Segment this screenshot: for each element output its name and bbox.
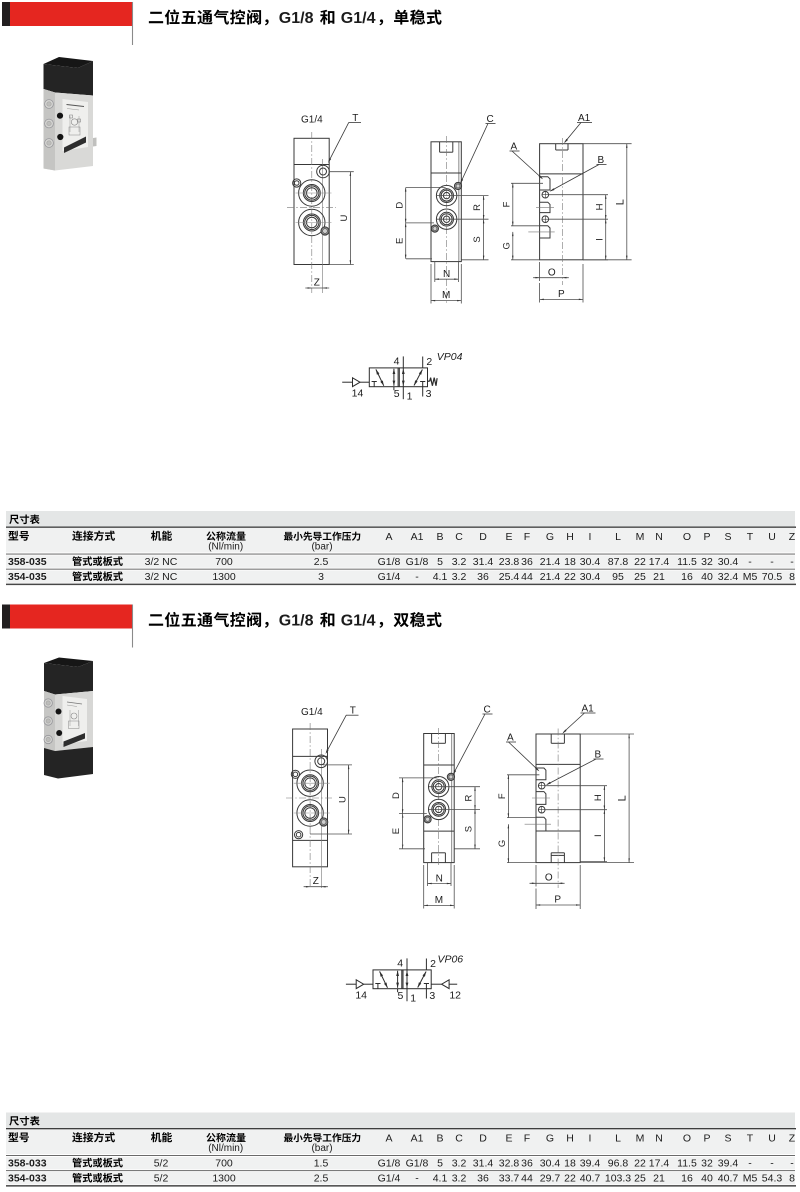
svg-text:5: 5 <box>397 990 403 1002</box>
svg-text:M5: M5 <box>743 571 758 583</box>
svg-text:3.2: 3.2 <box>452 1173 467 1185</box>
svg-text:1: 1 <box>410 993 416 1005</box>
svg-text:3: 3 <box>318 571 324 583</box>
svg-text:Z: Z <box>314 278 320 289</box>
svg-text:4.1: 4.1 <box>433 1173 448 1185</box>
svg-text:96.8: 96.8 <box>608 1158 629 1170</box>
svg-text:-: - <box>748 556 752 568</box>
svg-text:3/2 NC: 3/2 NC <box>145 556 178 568</box>
svg-text:A1: A1 <box>411 1132 424 1144</box>
svg-text:700: 700 <box>215 1158 233 1170</box>
svg-text:N: N <box>436 873 443 884</box>
svg-text:12: 12 <box>449 990 461 1002</box>
svg-text:(Nl/min): (Nl/min) <box>208 1143 243 1154</box>
svg-text:14: 14 <box>352 388 364 400</box>
svg-text:(Nl/min): (Nl/min) <box>208 542 243 553</box>
svg-text:M: M <box>435 895 443 906</box>
svg-text:G1/8: G1/8 <box>378 1158 401 1170</box>
svg-text:30.4: 30.4 <box>580 571 601 583</box>
svg-text:39.4: 39.4 <box>580 1158 601 1170</box>
svg-text:8: 8 <box>789 1173 795 1185</box>
svg-text:40: 40 <box>701 571 713 583</box>
svg-text:-: - <box>770 1158 774 1170</box>
svg-text:Z: Z <box>313 876 319 887</box>
svg-text:2.5: 2.5 <box>314 1173 329 1185</box>
svg-text:D: D <box>391 792 402 799</box>
svg-text:(bar): (bar) <box>311 1143 332 1154</box>
svg-text:354-033: 354-033 <box>8 1173 47 1185</box>
svg-text:O: O <box>545 873 553 884</box>
svg-text:25: 25 <box>634 1173 646 1185</box>
svg-text:N: N <box>655 531 663 543</box>
svg-text:1.5: 1.5 <box>314 1158 329 1170</box>
svg-text:T: T <box>747 531 754 543</box>
svg-text:H: H <box>566 531 574 543</box>
svg-text:87.8: 87.8 <box>608 556 629 568</box>
svg-text:44: 44 <box>521 1173 533 1185</box>
svg-text:G1/8: G1/8 <box>406 556 429 568</box>
svg-text:G1/8: G1/8 <box>279 613 314 630</box>
svg-text:-: - <box>415 1173 419 1185</box>
svg-text:I: I <box>594 238 605 241</box>
svg-text:3: 3 <box>426 388 432 400</box>
svg-text:P: P <box>703 531 710 543</box>
svg-text:44: 44 <box>521 571 533 583</box>
svg-text:22: 22 <box>634 556 646 568</box>
svg-text:U: U <box>339 215 350 222</box>
svg-text:I: I <box>589 1132 592 1144</box>
svg-text:21.4: 21.4 <box>540 556 561 568</box>
svg-text:U: U <box>768 531 776 543</box>
svg-text:G1/4: G1/4 <box>301 707 323 718</box>
svg-text:22: 22 <box>634 1158 646 1170</box>
svg-text:36: 36 <box>521 556 533 568</box>
svg-text:11.5: 11.5 <box>677 556 697 568</box>
svg-text:M: M <box>442 290 450 301</box>
svg-text:F: F <box>524 1132 530 1144</box>
svg-text:G1/4: G1/4 <box>378 1173 401 1185</box>
svg-text:-: - <box>790 1158 794 1170</box>
svg-text:F: F <box>497 793 508 799</box>
svg-text:29.7: 29.7 <box>540 1173 561 1185</box>
svg-text:G1/8: G1/8 <box>406 1158 429 1170</box>
svg-text:70.5: 70.5 <box>762 571 783 583</box>
svg-text:F: F <box>524 531 530 543</box>
svg-text:P: P <box>554 894 561 905</box>
svg-text:32: 32 <box>701 1158 713 1170</box>
svg-text:18: 18 <box>564 556 576 568</box>
svg-text:C: C <box>455 531 463 543</box>
svg-text:1300: 1300 <box>212 1173 236 1185</box>
svg-text:31.4: 31.4 <box>473 556 494 568</box>
svg-text:16: 16 <box>681 571 693 583</box>
svg-text:F: F <box>501 201 512 207</box>
svg-text:G: G <box>501 242 512 249</box>
svg-text:21: 21 <box>653 571 665 583</box>
svg-text:2: 2 <box>426 356 432 368</box>
svg-text:C: C <box>455 1132 463 1144</box>
svg-text:M: M <box>636 1132 645 1144</box>
svg-text:3/2 NC: 3/2 NC <box>145 571 178 583</box>
svg-text:21.4: 21.4 <box>540 571 561 583</box>
svg-text:14: 14 <box>355 990 367 1002</box>
svg-text:32.4: 32.4 <box>718 571 739 583</box>
svg-text:358-035: 358-035 <box>8 556 47 568</box>
svg-text:700: 700 <box>215 556 233 568</box>
svg-text:3.2: 3.2 <box>452 1158 467 1170</box>
svg-text:30.4: 30.4 <box>540 1158 561 1170</box>
svg-text:36: 36 <box>521 1158 533 1170</box>
svg-text:30.4: 30.4 <box>718 556 739 568</box>
svg-text:5: 5 <box>437 556 443 568</box>
svg-text:32.8: 32.8 <box>499 1158 520 1170</box>
svg-text:VP04: VP04 <box>437 351 463 363</box>
svg-text:-: - <box>415 571 419 583</box>
svg-text:22: 22 <box>564 571 576 583</box>
svg-text:D: D <box>479 531 487 543</box>
svg-text:H: H <box>594 203 605 210</box>
svg-text:E: E <box>505 1132 512 1144</box>
svg-text:G1/4: G1/4 <box>301 115 323 126</box>
svg-text:25.4: 25.4 <box>499 571 520 583</box>
svg-text:R: R <box>472 204 483 211</box>
svg-text:22: 22 <box>564 1173 576 1185</box>
svg-text:B: B <box>436 1132 443 1144</box>
svg-text:G1/4: G1/4 <box>341 613 376 630</box>
svg-text:D: D <box>394 202 405 209</box>
svg-text:N: N <box>443 269 450 280</box>
svg-text:4: 4 <box>397 958 403 970</box>
svg-text:54.3: 54.3 <box>762 1173 783 1185</box>
svg-text:(bar): (bar) <box>311 542 332 553</box>
svg-text:O: O <box>683 1132 691 1144</box>
svg-text:-: - <box>770 556 774 568</box>
svg-text:18: 18 <box>564 1158 576 1170</box>
svg-text:5/2: 5/2 <box>154 1173 169 1185</box>
svg-text:33.7: 33.7 <box>499 1173 520 1185</box>
svg-text:S: S <box>472 236 483 242</box>
svg-text:16: 16 <box>681 1173 693 1185</box>
svg-text:5: 5 <box>437 1158 443 1170</box>
svg-text:Z: Z <box>789 531 796 543</box>
svg-text:39.4: 39.4 <box>718 1158 739 1170</box>
svg-text:P: P <box>558 289 565 300</box>
svg-text:N: N <box>655 1132 663 1144</box>
svg-text:Z: Z <box>789 1132 796 1144</box>
svg-text:2.5: 2.5 <box>314 556 329 568</box>
svg-text:25: 25 <box>634 571 646 583</box>
svg-text:23.8: 23.8 <box>499 556 520 568</box>
svg-text:G1/4: G1/4 <box>378 571 401 583</box>
svg-text:D: D <box>479 1132 487 1144</box>
svg-text:30.4: 30.4 <box>580 556 601 568</box>
svg-text:G: G <box>546 531 554 543</box>
svg-text:21: 21 <box>653 1173 665 1185</box>
svg-text:3.2: 3.2 <box>452 571 467 583</box>
svg-text:40.7: 40.7 <box>718 1173 739 1185</box>
svg-text:U: U <box>768 1132 776 1144</box>
svg-text:G: G <box>546 1132 554 1144</box>
svg-text:40: 40 <box>701 1173 713 1185</box>
svg-text:358-033: 358-033 <box>8 1158 47 1170</box>
svg-text:5: 5 <box>394 388 400 400</box>
svg-text:1300: 1300 <box>212 571 236 583</box>
svg-text:2: 2 <box>430 958 436 970</box>
svg-text:L: L <box>617 795 629 801</box>
svg-text:3.2: 3.2 <box>452 556 467 568</box>
svg-text:36: 36 <box>477 1173 489 1185</box>
svg-text:S: S <box>464 826 475 832</box>
svg-text:E: E <box>394 238 405 244</box>
svg-text:5/2: 5/2 <box>154 1158 169 1170</box>
svg-text:95: 95 <box>612 571 624 583</box>
svg-text:T: T <box>747 1132 754 1144</box>
svg-text:-: - <box>748 1158 752 1170</box>
svg-text:354-035: 354-035 <box>8 571 47 583</box>
svg-text:31.4: 31.4 <box>473 1158 494 1170</box>
svg-text:17.4: 17.4 <box>649 1158 670 1170</box>
svg-text:E: E <box>505 531 512 543</box>
svg-text:11.5: 11.5 <box>677 1158 697 1170</box>
svg-text:3: 3 <box>429 990 435 1002</box>
svg-text:E: E <box>391 828 402 834</box>
svg-text:P: P <box>703 1132 710 1144</box>
svg-text:17.4: 17.4 <box>649 556 670 568</box>
svg-text:G: G <box>497 840 508 847</box>
svg-text:-: - <box>790 556 794 568</box>
svg-text:VP06: VP06 <box>437 953 463 965</box>
svg-text:G1/8: G1/8 <box>279 10 314 27</box>
svg-text:S: S <box>724 1132 731 1144</box>
svg-text:4: 4 <box>394 356 400 368</box>
svg-text:A: A <box>385 531 392 543</box>
svg-text:1: 1 <box>407 391 413 403</box>
svg-text:S: S <box>724 531 731 543</box>
svg-text:103.3: 103.3 <box>605 1173 631 1185</box>
svg-text:L: L <box>615 1132 621 1144</box>
svg-text:L: L <box>615 531 621 543</box>
svg-text:4.1: 4.1 <box>433 571 448 583</box>
svg-text:B: B <box>436 531 443 543</box>
svg-text:L: L <box>614 199 626 205</box>
svg-text:M: M <box>636 531 645 543</box>
svg-text:G1/8: G1/8 <box>378 556 401 568</box>
svg-text:U: U <box>337 796 348 803</box>
svg-text:O: O <box>548 267 556 278</box>
svg-text:36: 36 <box>477 571 489 583</box>
svg-text:8: 8 <box>789 571 795 583</box>
svg-text:A: A <box>385 1132 392 1144</box>
svg-text:I: I <box>589 531 592 543</box>
svg-text:40.7: 40.7 <box>580 1173 601 1185</box>
svg-text:M5: M5 <box>743 1173 758 1185</box>
svg-text:G1/4: G1/4 <box>341 10 376 27</box>
svg-text:O: O <box>683 531 691 543</box>
svg-text:32: 32 <box>701 556 713 568</box>
svg-text:H: H <box>566 1132 574 1144</box>
svg-text:A1: A1 <box>411 531 424 543</box>
svg-text:H: H <box>593 794 604 801</box>
svg-text:R: R <box>464 795 475 802</box>
svg-text:I: I <box>593 834 604 837</box>
